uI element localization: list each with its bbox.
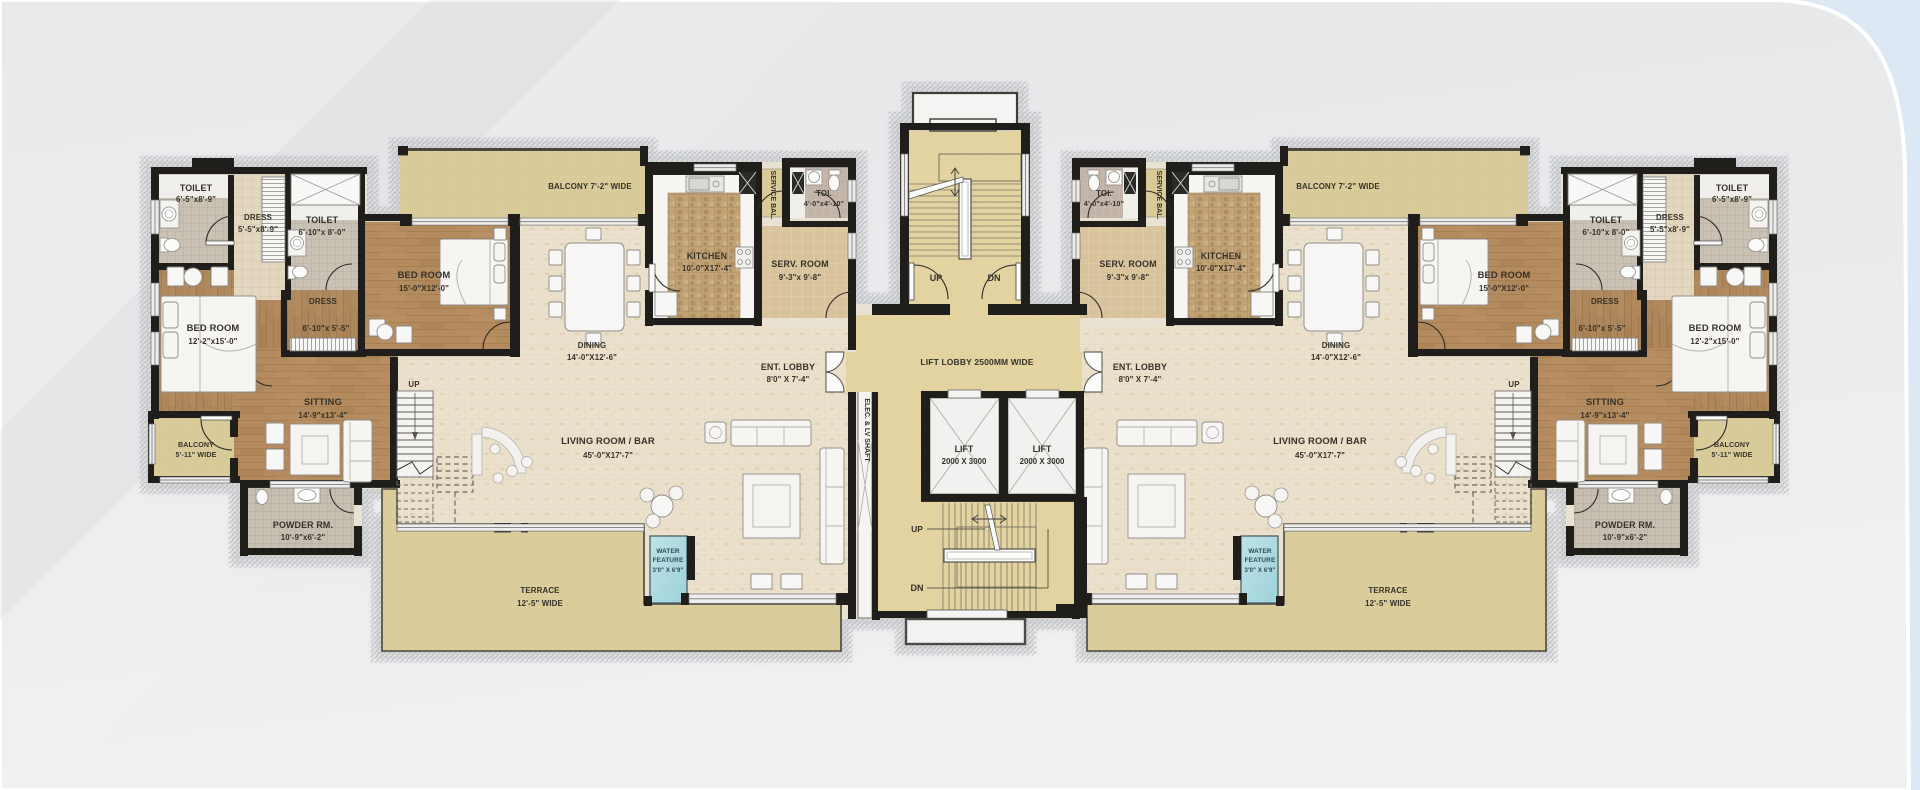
svg-text:SERV. ROOM: SERV. ROOM: [1099, 259, 1156, 269]
svg-text:3'0" X 6'9": 3'0" X 6'9": [653, 568, 684, 574]
svg-text:BED ROOM: BED ROOM: [187, 322, 240, 333]
svg-text:4'-0"x4'-10": 4'-0"x4'-10": [1084, 200, 1124, 208]
svg-text:UP: UP: [930, 273, 943, 283]
svg-text:UP: UP: [408, 380, 419, 389]
svg-text:45'-0"X17'-7": 45'-0"X17'-7": [1295, 451, 1345, 460]
svg-text:3'0" X 6'9": 3'0" X 6'9": [1245, 568, 1276, 574]
svg-text:FEATURE: FEATURE: [653, 557, 684, 564]
svg-text:SITTING: SITTING: [1586, 396, 1624, 407]
svg-text:6'-10"x 5'-5": 6'-10"x 5'-5": [303, 324, 350, 333]
svg-text:SERV. ROOM: SERV. ROOM: [771, 259, 828, 269]
svg-text:TOILET: TOILET: [306, 215, 339, 225]
svg-text:12'-5" WIDE: 12'-5" WIDE: [517, 599, 563, 608]
svg-text:SERVICE BAL.: SERVICE BAL.: [1155, 171, 1162, 220]
svg-text:BALCONY 7'-2" WIDE: BALCONY 7'-2" WIDE: [1296, 182, 1380, 191]
svg-text:ENT. LOBBY: ENT. LOBBY: [761, 362, 815, 372]
svg-text:2000 X 3000: 2000 X 3000: [942, 457, 987, 466]
svg-text:LIVING ROOM / BAR: LIVING ROOM / BAR: [561, 435, 655, 446]
svg-text:SITTING: SITTING: [304, 396, 342, 407]
svg-text:UP: UP: [911, 524, 923, 534]
svg-text:12'-2"x15'-0": 12'-2"x15'-0": [188, 337, 237, 346]
svg-text:14'-0"X12'-6": 14'-0"X12'-6": [567, 353, 617, 362]
svg-text:ENT. LOBBY: ENT. LOBBY: [1113, 362, 1167, 372]
svg-text:14'-0"X12'-6": 14'-0"X12'-6": [1311, 353, 1361, 362]
svg-text:12'-5" WIDE: 12'-5" WIDE: [1365, 599, 1411, 608]
svg-text:6'-10"x 8'-0": 6'-10"x 8'-0": [299, 228, 346, 237]
svg-text:POWDER RM.: POWDER RM.: [1595, 520, 1655, 530]
svg-text:TOI.: TOI.: [1096, 189, 1112, 198]
svg-text:POWDER RM.: POWDER RM.: [273, 520, 333, 530]
svg-text:TERRACE: TERRACE: [520, 586, 559, 595]
svg-text:TOI.: TOI.: [816, 189, 832, 198]
svg-text:LIFT: LIFT: [955, 444, 974, 454]
svg-text:5'-11" WIDE: 5'-11" WIDE: [176, 451, 217, 459]
svg-text:2000 X 3000: 2000 X 3000: [1020, 457, 1065, 466]
svg-text:6'-5"x8'-9": 6'-5"x8'-9": [1712, 195, 1752, 204]
svg-text:FEATURE: FEATURE: [1245, 557, 1276, 564]
svg-text:5'-5"x8'-9": 5'-5"x8'-9": [1650, 225, 1690, 234]
svg-text:WATER: WATER: [1248, 548, 1272, 555]
svg-text:DINING: DINING: [578, 341, 607, 350]
svg-text:15'-0"X12'-0": 15'-0"X12'-0": [399, 284, 449, 293]
svg-text:DN: DN: [911, 583, 924, 593]
svg-text:10'-0"X17'-4": 10'-0"X17'-4": [1196, 264, 1246, 273]
svg-text:DRESS: DRESS: [309, 297, 337, 306]
svg-text:LIFT LOBBY 2500MM WIDE: LIFT LOBBY 2500MM WIDE: [920, 357, 1033, 367]
svg-text:10'-0"X17'-4": 10'-0"X17'-4": [682, 264, 732, 273]
svg-text:BALCONY: BALCONY: [1714, 441, 1750, 449]
svg-text:BALCONY 7'-2" WIDE: BALCONY 7'-2" WIDE: [548, 182, 632, 191]
svg-text:DN: DN: [988, 273, 1001, 283]
svg-text:BED ROOM: BED ROOM: [398, 269, 451, 280]
svg-text:LIVING ROOM / BAR: LIVING ROOM / BAR: [1273, 435, 1367, 446]
svg-text:SERVICE BAL.: SERVICE BAL.: [769, 171, 776, 220]
svg-text:10'-9"x6'-2": 10'-9"x6'-2": [1603, 533, 1648, 542]
svg-text:WATER: WATER: [656, 548, 680, 555]
svg-text:5'-5"x8'-9": 5'-5"x8'-9": [238, 225, 278, 234]
svg-text:4'-0"x4'-10": 4'-0"x4'-10": [804, 200, 844, 208]
svg-text:DRESS: DRESS: [244, 213, 272, 222]
svg-text:9'-3"x 9'-8": 9'-3"x 9'-8": [779, 273, 822, 282]
svg-text:BALCONY: BALCONY: [178, 441, 214, 449]
svg-text:TOILET: TOILET: [1590, 215, 1623, 225]
svg-text:12'-2"x15'-0": 12'-2"x15'-0": [1690, 337, 1739, 346]
svg-text:TERRACE: TERRACE: [1368, 586, 1407, 595]
svg-text:6'-5"x8'-9": 6'-5"x8'-9": [176, 195, 216, 204]
svg-text:8'0" X 7'-4": 8'0" X 7'-4": [1119, 375, 1162, 384]
svg-text:14'-9"x13'-4": 14'-9"x13'-4": [298, 411, 347, 420]
svg-text:5'-11" WIDE: 5'-11" WIDE: [1712, 451, 1753, 459]
svg-text:TOILET: TOILET: [180, 183, 213, 193]
svg-text:14'-9"x13'-4": 14'-9"x13'-4": [1580, 411, 1629, 420]
svg-text:LIFT: LIFT: [1033, 444, 1052, 454]
svg-text:DRESS: DRESS: [1656, 213, 1684, 222]
svg-text:KITCHEN: KITCHEN: [687, 251, 728, 261]
svg-text:45'-0"X17'-7": 45'-0"X17'-7": [583, 451, 633, 460]
svg-text:6'-10"x 8'-0": 6'-10"x 8'-0": [1583, 228, 1630, 237]
svg-text:UP: UP: [1508, 380, 1519, 389]
svg-text:15'-0"X12'-0": 15'-0"X12'-0": [1479, 284, 1529, 293]
svg-text:8'0" X 7'-4": 8'0" X 7'-4": [767, 375, 810, 384]
svg-text:DRESS: DRESS: [1591, 297, 1619, 306]
svg-text:BED ROOM: BED ROOM: [1689, 322, 1742, 333]
svg-text:10'-9"x6'-2": 10'-9"x6'-2": [281, 533, 326, 542]
svg-text:DINING: DINING: [1322, 341, 1351, 350]
svg-text:9'-3"x 9'-8": 9'-3"x 9'-8": [1107, 273, 1150, 282]
svg-text:TOILET: TOILET: [1716, 183, 1749, 193]
svg-text:ELEC. & LV SHAFT: ELEC. & LV SHAFT: [863, 398, 870, 462]
svg-text:KITCHEN: KITCHEN: [1201, 251, 1242, 261]
svg-text:BED ROOM: BED ROOM: [1478, 269, 1531, 280]
svg-text:6'-10"x 5'-5": 6'-10"x 5'-5": [1579, 324, 1626, 333]
